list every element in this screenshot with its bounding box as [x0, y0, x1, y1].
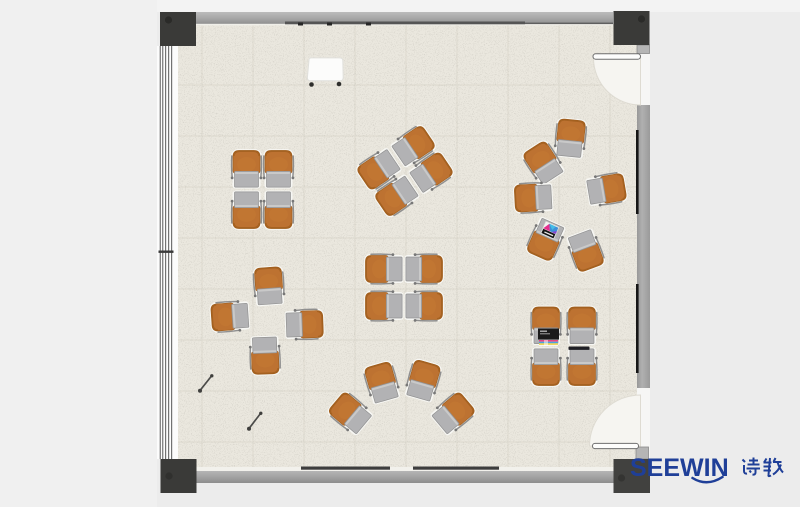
svg-text:SEEWIN: SEEWIN — [630, 454, 729, 482]
